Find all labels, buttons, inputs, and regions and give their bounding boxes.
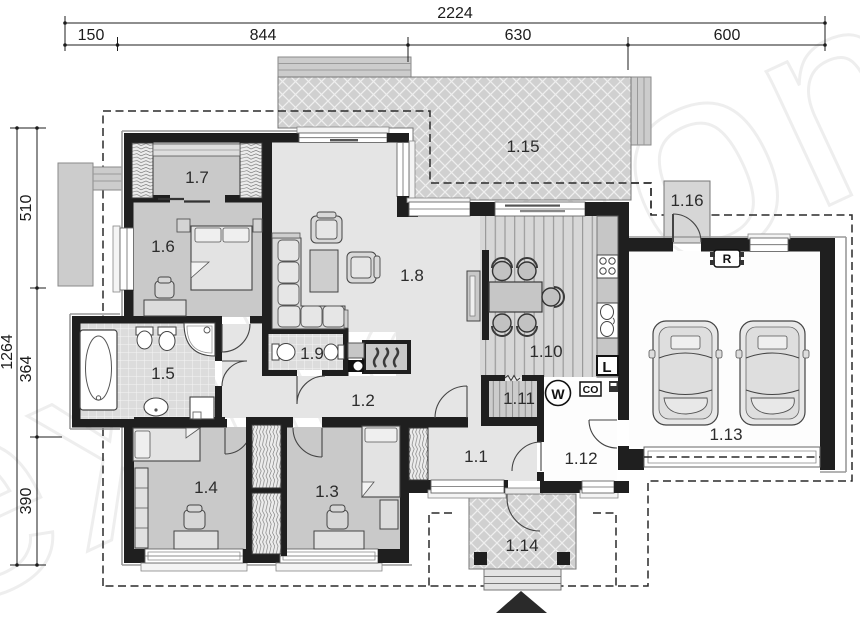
svg-text:1.5: 1.5 [151, 364, 175, 383]
svg-text:1.13: 1.13 [709, 425, 742, 444]
svg-text:844: 844 [250, 27, 277, 44]
svg-text:W: W [551, 386, 565, 402]
svg-text:1.16: 1.16 [670, 191, 703, 210]
svg-text:390: 390 [18, 488, 35, 515]
svg-text:L: L [602, 359, 611, 376]
svg-text:CO: CO [583, 384, 599, 396]
svg-text:1.14: 1.14 [505, 536, 538, 555]
svg-text:1.12: 1.12 [564, 449, 597, 468]
svg-text:510: 510 [18, 195, 35, 222]
svg-text:1.7: 1.7 [185, 168, 209, 187]
svg-text:1.1: 1.1 [464, 447, 488, 466]
svg-text:1264: 1264 [0, 334, 16, 370]
svg-text:600: 600 [714, 27, 741, 44]
svg-text:1.4: 1.4 [194, 478, 218, 497]
svg-text:1.11: 1.11 [503, 389, 535, 408]
svg-text:1.2: 1.2 [351, 391, 375, 410]
svg-text:1.9: 1.9 [300, 344, 324, 363]
svg-text:R: R [723, 252, 732, 266]
svg-text:150: 150 [78, 27, 105, 44]
svg-text:1.8: 1.8 [400, 266, 424, 285]
svg-text:2224: 2224 [437, 5, 473, 22]
svg-text:630: 630 [505, 27, 532, 44]
svg-text:1.6: 1.6 [151, 237, 175, 256]
svg-text:364: 364 [18, 356, 35, 383]
svg-text:1.15: 1.15 [506, 137, 539, 156]
svg-text:1.10: 1.10 [529, 342, 562, 361]
svg-text:1.3: 1.3 [315, 482, 339, 501]
